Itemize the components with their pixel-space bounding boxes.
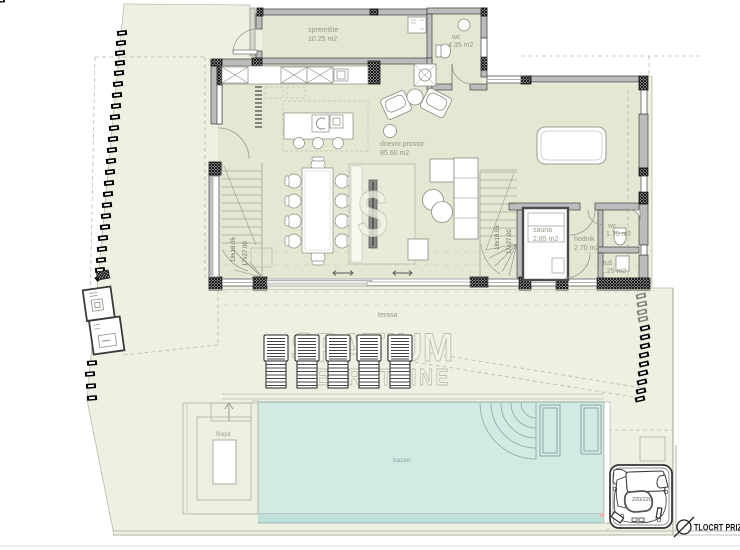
svg-text:hodnik: hodnik bbox=[574, 236, 595, 243]
svg-text:1.75 m2: 1.75 m2 bbox=[606, 231, 631, 238]
svg-text:wc: wc bbox=[451, 34, 461, 41]
svg-text:18x18.05: 18x18.05 bbox=[231, 237, 237, 262]
svg-text:sauna: sauna bbox=[533, 227, 552, 234]
svg-text:dnevni prostor: dnevni prostor bbox=[380, 141, 425, 148]
svg-text:2.85 m2: 2.85 m2 bbox=[533, 236, 558, 243]
svg-text:tuš: tuš bbox=[603, 260, 613, 267]
svg-text:firepit: firepit bbox=[216, 432, 231, 438]
svg-text:220/220: 220/220 bbox=[632, 497, 652, 503]
svg-text:10.25 m2: 10.25 m2 bbox=[308, 36, 337, 43]
svg-text:1.25 m2: 1.25 m2 bbox=[601, 268, 626, 275]
svg-text:4.35 m2: 4.35 m2 bbox=[448, 42, 473, 49]
svg-text:18x18.05: 18x18.05 bbox=[495, 225, 501, 250]
svg-text:2.70 m2: 2.70 m2 bbox=[574, 245, 599, 252]
svg-text:17x27.00: 17x27.00 bbox=[243, 241, 249, 266]
svg-text:TLOCRT PRIZE: TLOCRT PRIZE bbox=[694, 521, 740, 532]
svg-text:spremište: spremište bbox=[308, 27, 338, 34]
svg-text:bazen: bazen bbox=[393, 457, 411, 464]
svg-text:S: S bbox=[357, 178, 389, 250]
svg-text:wc: wc bbox=[607, 223, 617, 230]
svg-text:17x27.00: 17x27.00 bbox=[507, 229, 513, 254]
svg-text:terasa: terasa bbox=[378, 312, 398, 319]
svg-text:95.60 m2: 95.60 m2 bbox=[380, 150, 409, 157]
